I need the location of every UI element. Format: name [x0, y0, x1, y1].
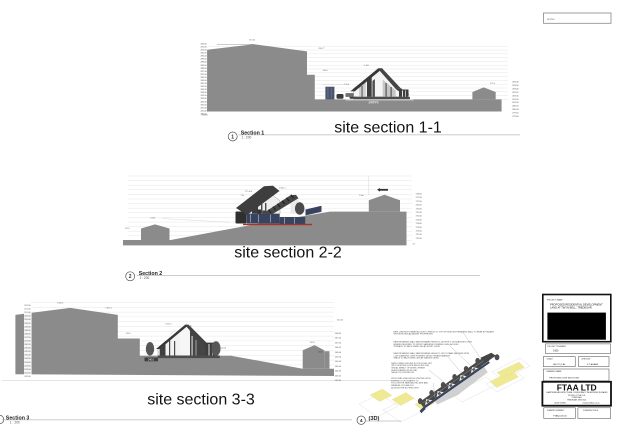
svg-text:243.00: 243.00 — [335, 380, 342, 382]
svg-text:244.50: 244.50 — [335, 366, 342, 368]
svg-text:1 : 200: 1 : 200 — [242, 136, 252, 140]
svg-text:ACROSS THE SLOPING SITE: ACROSS THE SLOPING SITE — [391, 386, 419, 389]
svg-text:VALLEY FLOOR BELOW: VALLEY FLOOR BELOW — [391, 371, 414, 374]
svg-text:5 8bc.b: 5 8bc.b — [105, 307, 112, 309]
svg-text:284.00: 284.00 — [512, 82, 519, 84]
svg-text:246.50: 246.50 — [335, 347, 342, 349]
svg-text:174.50: 174.50 — [416, 219, 423, 221]
svg-text:283.00: 283.00 — [512, 88, 519, 90]
svg-text:site section 3-3: site section 3-3 — [147, 391, 255, 408]
svg-text:282.50: 282.50 — [201, 101, 208, 103]
svg-text:280.50: 280.50 — [512, 106, 519, 108]
svg-text:4: 4 — [360, 418, 363, 424]
svg-text:176.50: 176.50 — [416, 205, 423, 207]
svg-text:SCALE: SCALE — [547, 357, 554, 360]
svg-text:17b: 17b — [241, 195, 245, 197]
svg-text:287.00: 287.00 — [201, 74, 208, 76]
svg-text:DRAWING NAME: DRAWING NAME — [546, 370, 562, 373]
svg-text:289.00: 289.00 — [201, 62, 208, 64]
svg-text:283.50: 283.50 — [512, 85, 519, 87]
svg-text:site section 1-1: site section 1-1 — [334, 120, 442, 137]
svg-text:289.50: 289.50 — [201, 59, 208, 61]
svg-text:248.00: 248.00 — [335, 333, 342, 335]
svg-text:FTAA LTD: FTAA LTD — [557, 382, 597, 392]
svg-text:245.00: 245.00 — [335, 361, 342, 363]
svg-text:281.50: 281.50 — [512, 99, 519, 101]
svg-text:1 : 200: 1 : 200 — [140, 276, 150, 280]
svg-text:175 b A: 175 b A — [245, 190, 252, 193]
svg-text:24: 24 — [413, 244, 416, 246]
svg-text:283.50: 283.50 — [201, 95, 208, 97]
svg-text:WITH EXISTING ADJACENT PROPERT: WITH EXISTING ADJACENT PROPERTIES — [393, 333, 433, 336]
svg-text:24070: 24070 — [369, 100, 379, 104]
svg-text:TREDEGAR, NP22 3DL: TREDEGAR, NP22 3DL — [567, 399, 586, 402]
svg-text:285.00: 285.00 — [201, 86, 208, 88]
svg-text:244.00: 244.00 — [335, 371, 342, 373]
svg-text:291.00: 291.00 — [201, 50, 208, 52]
svg-text:249.50: 249.50 — [24, 323, 31, 325]
svg-text:178.00: 178.00 — [416, 194, 423, 196]
svg-text:1: 1 — [231, 134, 234, 140]
svg-text:2: 2 — [129, 274, 132, 280]
svg-text:288.50: 288.50 — [201, 65, 208, 67]
svg-text:246.00: 246.00 — [24, 348, 31, 350]
svg-text:291.50: 291.50 — [201, 47, 208, 49]
svg-text:282.00: 282.00 — [512, 95, 519, 97]
svg-text:PROPOSED SITE SECTIONS: PROPOSED SITE SECTIONS — [549, 377, 579, 379]
svg-text:250.50: 250.50 — [24, 316, 31, 318]
svg-text:SPACE TO EACH DWELLING AT GARD: SPACE TO EACH DWELLING AT GARDEN LEVEL — [393, 357, 440, 360]
svg-text:285.50: 285.50 — [201, 83, 208, 85]
svg-text:172.00: 172.00 — [416, 238, 423, 240]
svg-text:DRAWING NUMBER: DRAWING NUMBER — [547, 409, 565, 412]
svg-text:246.00: 246.00 — [335, 352, 342, 354]
svg-text:286.00: 286.00 — [201, 80, 208, 82]
svg-text:280.00: 280.00 — [512, 109, 519, 111]
svg-text:246.50: 246.50 — [24, 344, 31, 346]
svg-text:173.00: 173.00 — [416, 231, 423, 233]
svg-text:244.50: 244.50 — [24, 358, 31, 360]
svg-text:282.00: 282.00 — [201, 104, 208, 106]
svg-text:247.00: 247.00 — [335, 342, 342, 344]
svg-text:248.50: 248.50 — [24, 330, 31, 332]
svg-text:288.00: 288.00 — [201, 68, 208, 70]
svg-text:268.00: 268.00 — [202, 115, 209, 117]
svg-text:176.00: 176.00 — [416, 208, 423, 210]
svg-text:site section 2-2: site section 2-2 — [234, 245, 342, 262]
svg-text:1 Bbc 5: 1 Bbc 5 — [279, 188, 287, 190]
svg-text:enquiries@ftaa.co.uk: enquiries@ftaa.co.uk — [583, 401, 600, 404]
svg-text:247.50: 247.50 — [335, 338, 342, 340]
svg-text:1 : 200: 1 : 200 — [10, 421, 20, 425]
svg-text:FTAA-1420-05: FTAA-1420-05 — [553, 414, 567, 417]
svg-text:PROJECT NUMBER: PROJECT NUMBER — [547, 346, 566, 348]
svg-text:243.00: 243.00 — [24, 369, 31, 371]
svg-text:247.50: 247.50 — [24, 337, 31, 339]
svg-text:252.00: 252.00 — [337, 319, 344, 321]
svg-text:243.50: 243.50 — [335, 375, 342, 377]
svg-text:281.00: 281.00 — [201, 110, 208, 112]
svg-text:CHARTERED ARCHITECTURAL CONSUL: CHARTERED ARCHITECTURAL CONSULTANCY REGI… — [546, 391, 608, 394]
svg-text:243.50: 243.50 — [24, 365, 31, 367]
svg-text:292.00: 292.00 — [249, 40, 256, 42]
svg-text:290.00: 290.00 — [201, 56, 208, 58]
svg-text:CHECKED: CHECKED — [581, 358, 591, 360]
svg-text:1 B.A: 1 B.A — [344, 83, 350, 86]
svg-text:NOTES: NOTES — [547, 19, 555, 21]
svg-text:290.50: 290.50 — [201, 53, 208, 55]
svg-text:5 460: 5 460 — [364, 65, 370, 67]
svg-text:240.0: 240.0 — [148, 359, 155, 362]
svg-text:175.00: 175.00 — [416, 216, 423, 218]
svg-text:287.50: 287.50 — [201, 71, 208, 73]
svg-text:6 ab.bb: 6 ab.bb — [219, 348, 227, 350]
svg-text:242.0: 242.0 — [310, 342, 316, 344]
svg-text:280.0: 280.0 — [323, 70, 329, 72]
svg-text:244.00: 244.00 — [24, 362, 31, 364]
svg-text:TERRACE TO EACH DWELLING AT EN: TERRACE TO EACH DWELLING AT ENTRY LEVEL — [393, 345, 441, 348]
svg-text:284.50: 284.50 — [201, 89, 208, 91]
svg-text:250.00: 250.00 — [24, 319, 31, 321]
svg-text:251.00: 251.00 — [24, 312, 31, 314]
svg-text:F.T. ADAMS: F.T. ADAMS — [587, 363, 599, 366]
svg-text:AS FIT @ A1: AS FIT @ A1 — [553, 363, 566, 366]
svg-text:175.50: 175.50 — [416, 212, 423, 214]
svg-text:177.00: 177.00 — [416, 201, 423, 203]
svg-text:284.00: 284.00 — [201, 92, 208, 94]
svg-text:240.0: 240.0 — [126, 333, 132, 335]
svg-text:LAND AT TWYN BELL, TREDEGAR: LAND AT TWYN BELL, TREDEGAR — [550, 306, 592, 310]
svg-text:242.00: 242.00 — [24, 376, 31, 378]
svg-text:251.50: 251.50 — [24, 309, 31, 311]
svg-text:PROJECT NAME: PROJECT NAME — [547, 299, 563, 302]
svg-text:245.50: 245.50 — [24, 351, 31, 353]
svg-text:1 b8b: 1 b8b — [150, 218, 156, 220]
svg-text:173.50: 173.50 — [416, 227, 423, 229]
svg-text:282.50: 282.50 — [512, 92, 519, 94]
svg-text:281.50: 281.50 — [201, 107, 208, 109]
svg-text:01234 567890: 01234 567890 — [554, 402, 566, 404]
svg-text:279.50: 279.50 — [512, 113, 519, 115]
svg-text:249.00: 249.00 — [24, 326, 31, 328]
svg-text:245.50: 245.50 — [335, 357, 342, 359]
svg-text:1420: 1420 — [553, 350, 559, 353]
svg-text:1 Bbc: 1 Bbc — [359, 195, 364, 197]
svg-text:247.00: 247.00 — [24, 341, 31, 343]
svg-text:281.00: 281.00 — [512, 102, 519, 104]
svg-text:172.50: 172.50 — [416, 234, 423, 236]
svg-text:1 960.0: 1 960.0 — [57, 302, 65, 304]
svg-text:177.50: 177.50 — [416, 197, 423, 199]
svg-text:242.50: 242.50 — [24, 372, 31, 374]
svg-text:248.00: 248.00 — [24, 333, 31, 335]
svg-text:175.0: 175.0 — [125, 228, 131, 230]
svg-text:286.77: 286.77 — [318, 48, 325, 50]
svg-text:245.00: 245.00 — [24, 355, 31, 357]
svg-text:252.00: 252.00 — [24, 305, 31, 307]
svg-text:292.00: 292.00 — [201, 44, 208, 46]
svg-text:279.00: 279.00 — [512, 116, 519, 118]
svg-text:174.00: 174.00 — [416, 223, 423, 225]
svg-text:275.0: 275.0 — [490, 83, 496, 85]
svg-text:5 bc: 5 bc — [188, 326, 192, 328]
svg-text:283.00: 283.00 — [201, 98, 208, 100]
svg-text:286.50: 286.50 — [201, 77, 208, 79]
svg-text:PLANNING ISSUE: PLANNING ISSUE — [583, 409, 599, 412]
svg-text:7 585.5: 7 585.5 — [165, 324, 173, 326]
